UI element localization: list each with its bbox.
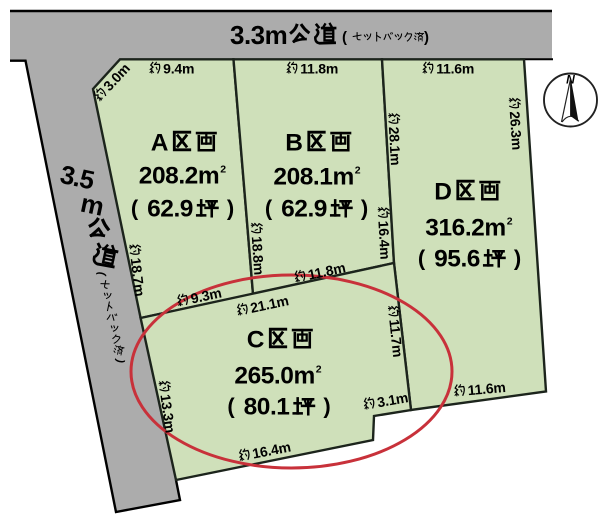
svg-text:80.1: 80.1: [244, 394, 290, 421]
svg-text:(: (: [227, 393, 235, 418]
svg-text:3.3m: 3.3m: [230, 20, 287, 50]
svg-text:28.1m: 28.1m: [386, 126, 404, 165]
svg-text:D: D: [434, 179, 452, 206]
svg-text:208.2m: 208.2m: [139, 163, 219, 190]
svg-text:A: A: [151, 130, 169, 157]
svg-text:316.2m: 316.2m: [425, 215, 505, 242]
svg-text:B: B: [285, 130, 303, 157]
svg-text:): ): [361, 195, 368, 220]
svg-text:(: (: [418, 245, 426, 270]
svg-text:(: (: [131, 195, 139, 220]
svg-text:208.1m: 208.1m: [273, 164, 353, 191]
svg-text:2: 2: [355, 165, 361, 177]
svg-text:26.3m: 26.3m: [507, 111, 526, 151]
svg-text:62.9: 62.9: [147, 196, 193, 223]
svg-text:C: C: [247, 327, 265, 354]
svg-text:2: 2: [316, 364, 322, 376]
svg-text:265.0m: 265.0m: [234, 363, 314, 390]
svg-text:): ): [227, 195, 234, 220]
svg-text:11.8m: 11.8m: [300, 60, 338, 76]
svg-text:11.6m: 11.6m: [467, 379, 506, 398]
svg-text:16.4m: 16.4m: [375, 220, 393, 259]
svg-text:2: 2: [507, 216, 513, 228]
svg-text:(: (: [265, 195, 273, 220]
svg-text:2: 2: [220, 164, 226, 176]
svg-text:(: (: [342, 29, 347, 46]
svg-text:9.4m: 9.4m: [163, 60, 194, 76]
svg-text:): ): [323, 393, 330, 418]
svg-text:): ): [514, 245, 521, 270]
svg-text:95.6: 95.6: [434, 246, 480, 273]
svg-text:62.9: 62.9: [281, 196, 327, 223]
svg-text:18.8m: 18.8m: [249, 236, 268, 276]
svg-text:11.6m: 11.6m: [436, 60, 474, 76]
svg-text:): ): [424, 29, 429, 46]
